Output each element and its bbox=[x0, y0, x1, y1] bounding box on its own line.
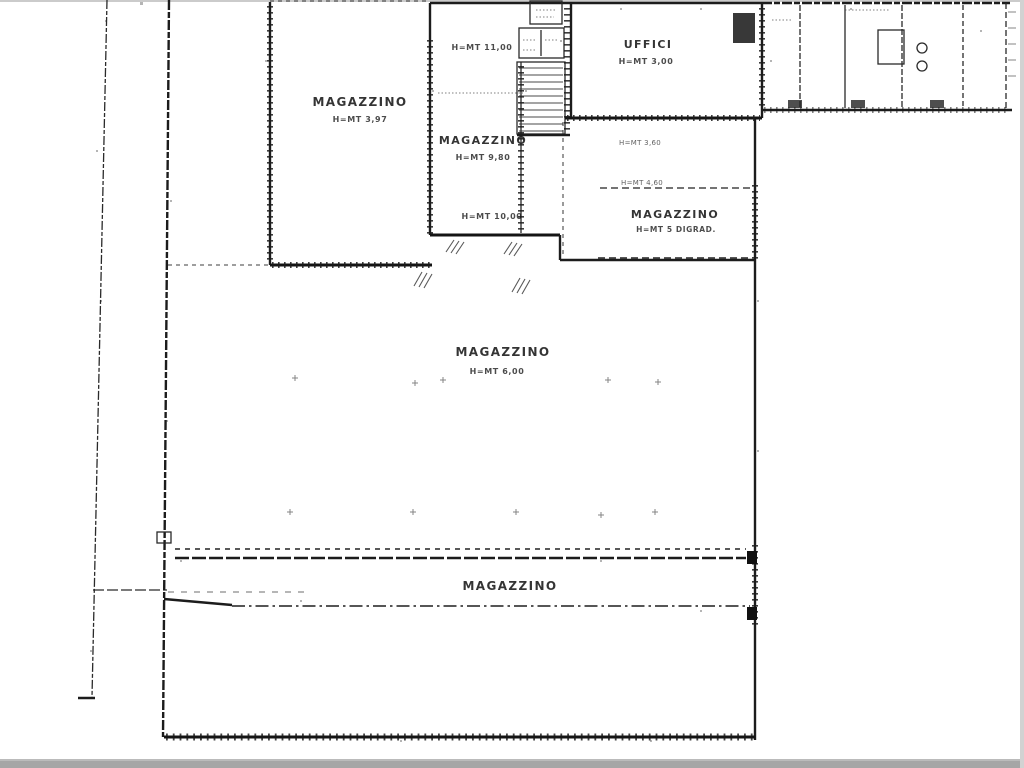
room-label: UFFICI bbox=[624, 38, 673, 51]
stair-symbol bbox=[733, 13, 755, 43]
door-blob bbox=[851, 100, 865, 108]
room-height: H=MT 3,97 bbox=[333, 115, 388, 124]
room-label: MAGAZZINO bbox=[455, 345, 550, 359]
room-height-bottom: H=MT 10,00 bbox=[462, 212, 523, 221]
paper bbox=[0, 0, 1024, 768]
door-blob bbox=[747, 551, 757, 564]
room-height: H=MT 6,00 bbox=[470, 367, 525, 376]
room-label: MAGAZZINO bbox=[462, 579, 557, 593]
door-blob bbox=[747, 607, 757, 620]
room-note-upper: H=MT 3,60 bbox=[619, 139, 661, 147]
door-blob bbox=[930, 100, 944, 108]
room-note-lower: H=MT 4,60 bbox=[621, 179, 663, 187]
floor-plan-scan: MAGAZZINO H=MT 3,97 H=MT 11,00 MAGAZZINO… bbox=[0, 0, 1024, 768]
room-height: H=MT 9,80 bbox=[456, 153, 511, 162]
room-label: MAGAZZINO bbox=[439, 134, 527, 147]
room-label: MAGAZZINO bbox=[312, 95, 407, 109]
room-height: H=MT 5 DIGRAD. bbox=[636, 225, 716, 234]
room-height: H=MT 3,00 bbox=[619, 57, 674, 66]
door-blob bbox=[788, 100, 802, 108]
room-height-top: H=MT 11,00 bbox=[452, 43, 513, 52]
room-label: MAGAZZINO bbox=[631, 208, 719, 221]
